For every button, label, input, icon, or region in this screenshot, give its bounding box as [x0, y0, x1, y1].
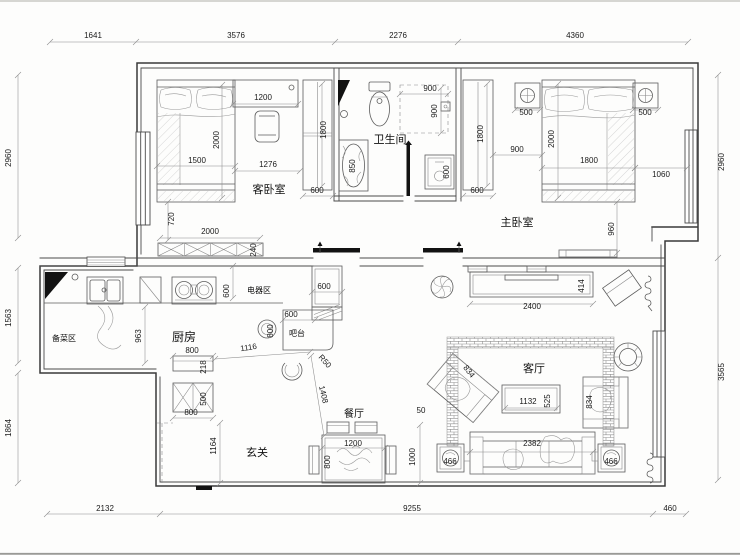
dim-label: 2000: [201, 227, 219, 236]
dim-label: 500: [638, 108, 652, 117]
dim-label: 834: [461, 363, 477, 379]
dim-label: 218: [199, 360, 208, 374]
dim-label: 9255: [403, 504, 421, 513]
dim-label: 834: [585, 395, 594, 409]
armchair-left: [427, 353, 499, 422]
guest-tv-cabinet: [158, 243, 263, 256]
guest-desk: [233, 80, 298, 142]
dim-label: 1800: [580, 156, 598, 165]
dim-label: 1641: [84, 31, 102, 40]
nightstand-left: [515, 83, 540, 108]
dim-label: 1200: [254, 93, 272, 102]
dim-label: 600: [310, 186, 324, 195]
room-label: 玄关: [246, 445, 268, 459]
room-label: 备菜区: [52, 333, 76, 343]
dim-label: 1060: [652, 170, 670, 179]
guest-bed: [157, 80, 235, 202]
dim-label: 900: [510, 145, 524, 154]
dim-label: 800: [266, 324, 275, 338]
tv-stand: [468, 266, 593, 297]
dim-label: 1164: [209, 437, 218, 455]
room-label: 吧台: [289, 328, 305, 338]
dim-label: 2276: [389, 31, 407, 40]
window-guest-bedroom: [136, 132, 150, 225]
room-label: 厨房: [172, 329, 196, 344]
bar-counter: [258, 310, 333, 380]
room-label: 客厅: [523, 361, 545, 375]
dim-label: 2000: [547, 130, 556, 148]
dim-label: 600: [284, 310, 298, 319]
dim-label: 2000: [212, 131, 221, 149]
dim-label: R50: [317, 353, 334, 370]
dim-label: 1800: [319, 121, 328, 139]
toilet: [369, 82, 390, 126]
dimension-labels: 1641357622764360296015631864296035652132…: [4, 31, 726, 513]
dim-label: 960: [607, 222, 616, 236]
dim-label: 2400: [523, 302, 541, 311]
dim-label: 800: [323, 455, 332, 469]
dim-label: 414: [577, 279, 586, 293]
corner-speaker: [603, 270, 642, 306]
nightstand-right: [633, 83, 658, 108]
dim-label: 1864: [4, 419, 13, 437]
exterior-walls: [40, 63, 698, 486]
dim-label: 500: [199, 392, 208, 406]
doors: [196, 141, 463, 491]
dim-label: 2960: [717, 153, 726, 171]
sliding-door-master-bedroom: [423, 242, 463, 254]
dim-label: 600: [222, 284, 231, 298]
room-labels: 客卧室卫生间主卧室厨房备菜区电器区吧台玄关餐厅客厅: [52, 132, 545, 459]
dim-label: 1132: [519, 397, 537, 406]
floor-plan-drawing: 1641357622764360296015631864296035652132…: [0, 0, 740, 555]
door-bathroom: [405, 141, 412, 197]
room-label: 电器区: [247, 285, 271, 295]
dim-label: 600: [317, 282, 331, 291]
dim-label: 460: [663, 504, 677, 513]
dim-label: 1116: [240, 342, 258, 354]
dim-label: 600: [470, 186, 484, 195]
room-label: 卫生间: [374, 132, 407, 146]
dim-label: 240: [249, 243, 258, 257]
curtains: [645, 276, 653, 483]
dim-label: 1563: [4, 309, 13, 327]
window-master-bedroom: [685, 130, 697, 223]
dim-label: 466: [604, 457, 618, 466]
swivel-chair: [614, 343, 642, 371]
dim-label: 2132: [96, 504, 114, 513]
hall-plant: [431, 276, 453, 298]
rug: [447, 337, 614, 446]
dim-label: 4360: [566, 31, 584, 40]
floor-plan-viewport: 1641357622764360296015631864296035652132…: [0, 0, 740, 555]
master-wall-bench: [559, 250, 617, 257]
dim-label: 1276: [259, 160, 277, 169]
dim-label: 800: [184, 408, 198, 417]
dim-label: 50: [417, 406, 426, 415]
dim-label: 3565: [717, 363, 726, 381]
shower-head: [441, 102, 450, 111]
dim-label: 1408: [317, 385, 330, 405]
dim-label: 466: [443, 457, 457, 466]
room-label: 客卧室: [253, 182, 286, 196]
dim-label: 2382: [523, 439, 541, 448]
dim-label: 1800: [476, 125, 485, 143]
wall-grille: [87, 257, 125, 267]
dimension-lines: [15, 39, 721, 517]
dim-label: 963: [134, 329, 143, 343]
dim-label: 3576: [227, 31, 245, 40]
window-living-room: [653, 331, 665, 457]
dim-label: 720: [167, 212, 176, 226]
room-label: 主卧室: [501, 215, 534, 229]
dim-label: 800: [185, 346, 199, 355]
dim-label: 500: [519, 108, 533, 117]
room-label: 餐厅: [344, 407, 364, 420]
dim-label: 850: [348, 159, 357, 173]
dim-label: 600: [442, 165, 451, 179]
dim-label: 900: [430, 104, 439, 118]
dim-label: 1000: [408, 448, 417, 466]
entry-door-threshold: [196, 486, 212, 490]
stove: [172, 277, 216, 304]
sliding-door-kitchen-hall: [313, 242, 360, 254]
dim-label: 2960: [4, 149, 13, 167]
dim-label: 1500: [188, 156, 206, 165]
dim-label: 525: [543, 394, 552, 408]
dim-label: 1200: [344, 439, 362, 448]
dim-label: 900: [423, 84, 437, 93]
appliance-cabinet: [312, 266, 342, 320]
